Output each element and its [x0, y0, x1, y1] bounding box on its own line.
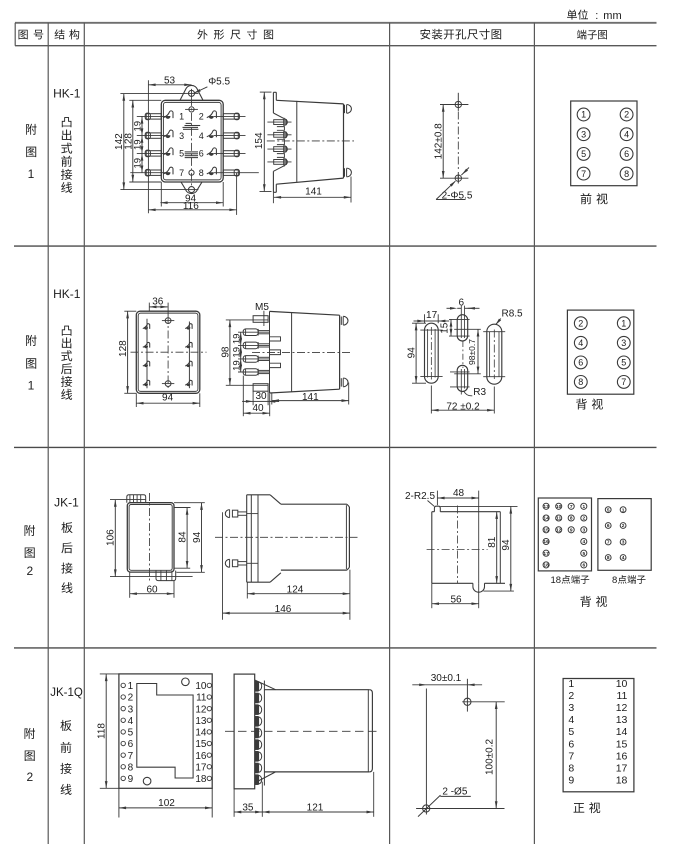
svg-text:16: 16	[195, 751, 207, 762]
svg-text:11: 11	[616, 690, 627, 702]
svg-text:6: 6	[568, 738, 574, 750]
svg-text:2: 2	[568, 690, 574, 702]
svg-text:10: 10	[556, 504, 562, 510]
svg-text:5: 5	[621, 358, 626, 368]
svg-text:5: 5	[581, 149, 586, 159]
svg-text:2: 2	[622, 523, 625, 529]
svg-text:100±0.2: 100±0.2	[484, 739, 495, 776]
svg-text:15: 15	[616, 738, 628, 750]
svg-text:4: 4	[622, 555, 625, 561]
svg-text:3: 3	[582, 528, 585, 534]
svg-text:4: 4	[582, 539, 585, 545]
svg-text:141: 141	[302, 392, 319, 403]
svg-text:3: 3	[179, 131, 184, 141]
svg-text:84: 84	[178, 531, 189, 543]
svg-text:18: 18	[616, 775, 628, 787]
svg-text:4: 4	[568, 714, 574, 726]
svg-text:12: 12	[195, 704, 207, 715]
svg-text:19: 19	[231, 334, 242, 345]
svg-text:98±0.7: 98±0.7	[467, 339, 477, 365]
svg-text:14: 14	[195, 728, 207, 739]
svg-text:9: 9	[568, 775, 574, 787]
svg-text:35: 35	[242, 803, 254, 814]
svg-text:19: 19	[133, 121, 144, 132]
svg-text:8: 8	[624, 169, 629, 179]
svg-text:116: 116	[183, 201, 199, 212]
svg-text:141: 141	[305, 187, 322, 198]
svg-text:6: 6	[199, 149, 204, 159]
svg-text:2: 2	[26, 564, 33, 578]
svg-text:JK-1: JK-1	[54, 496, 79, 510]
svg-text:6: 6	[128, 739, 134, 750]
svg-text:6: 6	[607, 523, 610, 529]
svg-text:8: 8	[578, 377, 583, 387]
svg-text:3: 3	[621, 338, 626, 348]
svg-text:1: 1	[581, 110, 586, 120]
svg-text:17: 17	[426, 310, 438, 321]
svg-text:6: 6	[582, 563, 585, 569]
svg-text:mm: mm	[603, 10, 621, 22]
svg-text:30±0.1: 30±0.1	[431, 673, 462, 684]
svg-text:81: 81	[487, 536, 498, 548]
svg-text:56: 56	[450, 595, 462, 606]
svg-text:5: 5	[179, 149, 184, 159]
svg-text:7: 7	[581, 169, 586, 179]
svg-text:18: 18	[543, 563, 549, 569]
svg-text:2: 2	[128, 693, 134, 704]
svg-text:1: 1	[568, 678, 574, 690]
svg-text:18: 18	[551, 575, 562, 586]
svg-text:9: 9	[570, 528, 573, 534]
svg-text:8: 8	[568, 763, 574, 775]
svg-text:2: 2	[578, 318, 583, 328]
svg-text:4: 4	[578, 338, 583, 348]
svg-text:3: 3	[128, 704, 134, 715]
svg-text::: :	[595, 10, 598, 22]
svg-text:1: 1	[582, 504, 585, 510]
svg-text:48: 48	[453, 488, 465, 499]
svg-text:17: 17	[195, 762, 207, 773]
svg-text:Φ5.5: Φ5.5	[208, 77, 230, 88]
svg-text:1: 1	[128, 681, 134, 692]
svg-text:13: 13	[195, 716, 207, 727]
svg-text:4: 4	[128, 716, 134, 727]
svg-text:16: 16	[616, 750, 628, 762]
svg-text:15: 15	[439, 322, 450, 334]
svg-text:4: 4	[624, 129, 629, 139]
svg-text:128: 128	[118, 340, 129, 357]
svg-text:3: 3	[622, 540, 625, 546]
svg-text:14: 14	[543, 516, 549, 522]
svg-text:72 ±0.2: 72 ±0.2	[446, 401, 480, 412]
svg-text:6: 6	[578, 358, 583, 368]
svg-text:106: 106	[106, 529, 117, 546]
svg-text:R3: R3	[473, 387, 486, 398]
svg-text:94: 94	[162, 393, 174, 404]
svg-text:36: 36	[152, 296, 164, 307]
svg-text:94: 94	[407, 347, 418, 359]
svg-text:6: 6	[459, 298, 465, 309]
svg-text:6: 6	[624, 149, 629, 159]
svg-text:5: 5	[128, 728, 134, 739]
svg-text:121: 121	[307, 803, 324, 814]
svg-text:2: 2	[582, 516, 585, 522]
svg-text:5: 5	[568, 726, 574, 738]
svg-text:146: 146	[275, 604, 292, 615]
svg-text:R8.5: R8.5	[502, 309, 524, 320]
svg-text:18: 18	[195, 774, 207, 785]
svg-text:7: 7	[621, 377, 626, 387]
svg-text:154: 154	[254, 132, 265, 149]
svg-text:2: 2	[624, 110, 629, 120]
svg-text:16: 16	[543, 539, 549, 545]
svg-text:19: 19	[231, 347, 242, 358]
svg-text:M5: M5	[255, 302, 269, 313]
svg-text:1: 1	[621, 318, 626, 328]
svg-text:11: 11	[556, 516, 561, 522]
svg-text:7: 7	[607, 540, 610, 546]
svg-text:60: 60	[146, 585, 158, 596]
svg-text:17: 17	[616, 763, 628, 775]
svg-text:13: 13	[543, 504, 549, 510]
svg-text:HK-1: HK-1	[53, 87, 81, 101]
svg-text:124: 124	[287, 585, 304, 596]
svg-text:HK-1: HK-1	[53, 287, 81, 301]
svg-text:JK-1Q: JK-1Q	[50, 687, 83, 699]
svg-text:3: 3	[581, 129, 586, 139]
svg-text:142±0.8: 142±0.8	[434, 123, 445, 160]
svg-text:13: 13	[616, 714, 628, 726]
svg-text:118: 118	[97, 723, 108, 739]
svg-text:7: 7	[179, 168, 184, 178]
svg-text:19: 19	[133, 139, 144, 150]
svg-text:17: 17	[543, 551, 549, 557]
svg-text:94: 94	[192, 531, 203, 543]
svg-text:2: 2	[26, 770, 33, 784]
svg-text:12: 12	[556, 528, 562, 534]
svg-text:2: 2	[199, 112, 204, 122]
svg-text:9: 9	[128, 774, 134, 785]
svg-text:7: 7	[570, 504, 573, 510]
svg-text:11: 11	[196, 693, 207, 704]
svg-text:8: 8	[128, 762, 134, 773]
svg-text:1: 1	[28, 378, 35, 392]
svg-text:8: 8	[612, 575, 617, 586]
svg-text:8: 8	[199, 168, 204, 178]
svg-text:30: 30	[255, 391, 267, 402]
svg-text:5: 5	[607, 507, 610, 513]
svg-text:15: 15	[195, 739, 207, 750]
svg-text:3: 3	[568, 702, 574, 714]
svg-text:1: 1	[622, 507, 625, 513]
svg-text:4: 4	[199, 131, 204, 141]
svg-text:7: 7	[568, 750, 574, 762]
svg-text:10: 10	[616, 678, 628, 690]
svg-text:2-R2.5: 2-R2.5	[405, 491, 435, 502]
svg-text:7: 7	[128, 751, 134, 762]
svg-text:12: 12	[616, 702, 628, 714]
svg-text:8: 8	[607, 555, 610, 561]
svg-text:19: 19	[133, 158, 144, 169]
svg-text:1: 1	[179, 112, 184, 122]
svg-text:1: 1	[28, 167, 35, 181]
svg-text:5: 5	[582, 551, 585, 557]
svg-text:14: 14	[616, 726, 628, 738]
svg-text:98: 98	[220, 346, 231, 358]
svg-text:94: 94	[501, 539, 512, 551]
svg-text:40: 40	[252, 403, 264, 414]
svg-text:10: 10	[195, 681, 207, 692]
svg-text:8: 8	[570, 516, 573, 522]
svg-text:15: 15	[543, 528, 549, 534]
svg-text:53: 53	[164, 76, 176, 87]
svg-text:102: 102	[158, 798, 175, 809]
svg-text:19: 19	[231, 360, 242, 371]
